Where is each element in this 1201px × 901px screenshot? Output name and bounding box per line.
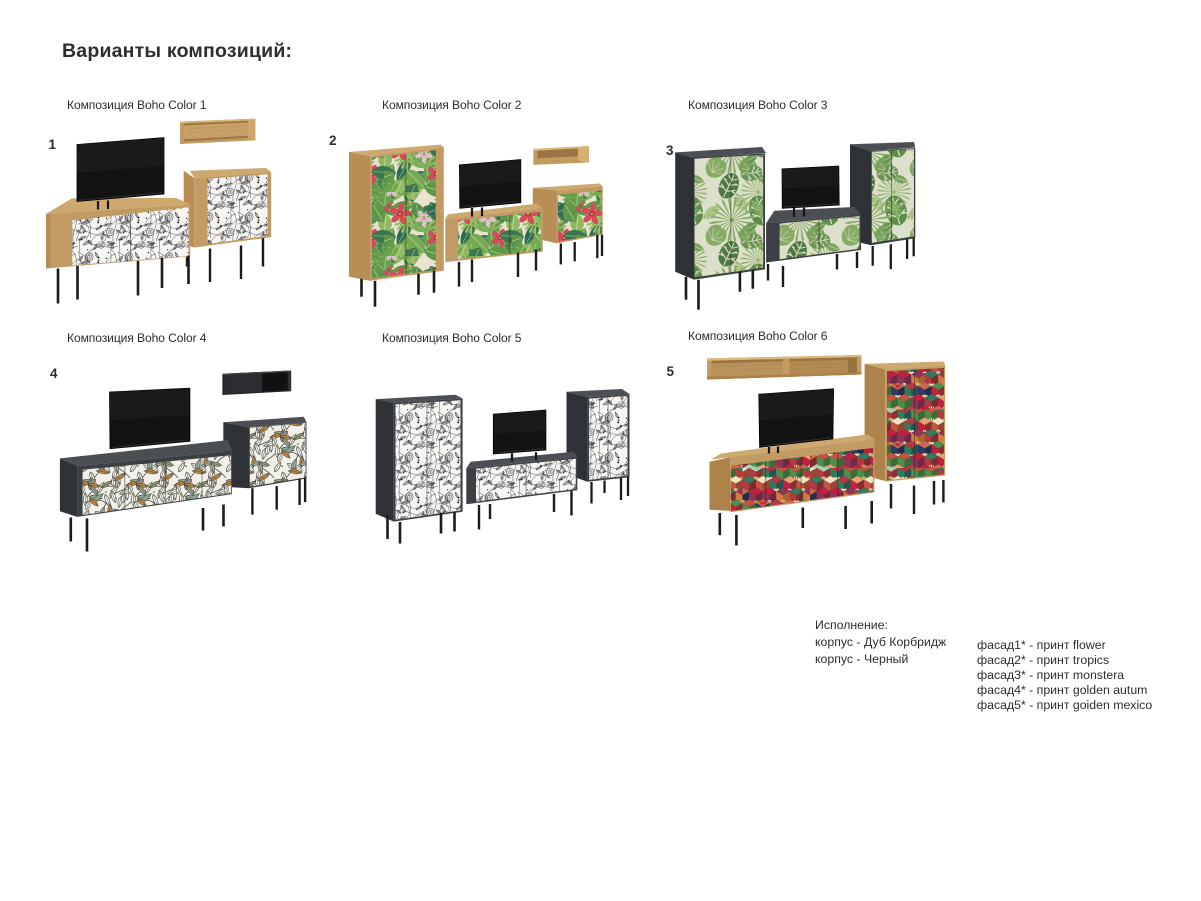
svg-text:Композиция Boho Color 2: Композиция Boho Color 2 [382, 98, 522, 112]
svg-text:Композиция Boho Color 4: Композиция Boho Color 4 [67, 331, 207, 345]
svg-text:корпус - Дуб Корбридж: корпус - Дуб Корбридж [815, 635, 947, 649]
svg-text:4: 4 [50, 366, 58, 381]
svg-text:Варианты композиций:: Варианты композиций: [62, 40, 292, 62]
svg-text:2: 2 [329, 133, 337, 148]
svg-text:фасад4* - принт golden autum: фасад4* - принт golden autum [977, 683, 1147, 697]
svg-text:1: 1 [49, 137, 57, 152]
svg-text:Композиция Boho Color 5: Композиция Boho Color 5 [382, 331, 522, 345]
svg-text:3: 3 [666, 143, 674, 158]
svg-text:Исполнение:: Исполнение: [815, 618, 888, 632]
svg-text:фасад1* - принт flower: фасад1* - принт flower [977, 638, 1106, 652]
svg-text:фасад3* - принт monstera: фасад3* - принт monstera [977, 668, 1124, 682]
svg-text:Композиция Boho Color 3: Композиция Boho Color 3 [688, 98, 828, 112]
svg-text:корпус - Черный: корпус - Черный [815, 652, 908, 666]
svg-text:5: 5 [667, 364, 675, 379]
svg-text:Композиция Boho Color 1: Композиция Boho Color 1 [67, 98, 207, 112]
svg-text:Композиция Boho Color 6: Композиция Boho Color 6 [688, 329, 828, 343]
svg-text:фасад5* - принт goiden mexico: фасад5* - принт goiden mexico [977, 698, 1152, 712]
svg-text:фасад2* - принт tropics: фасад2* - принт tropics [977, 653, 1109, 667]
